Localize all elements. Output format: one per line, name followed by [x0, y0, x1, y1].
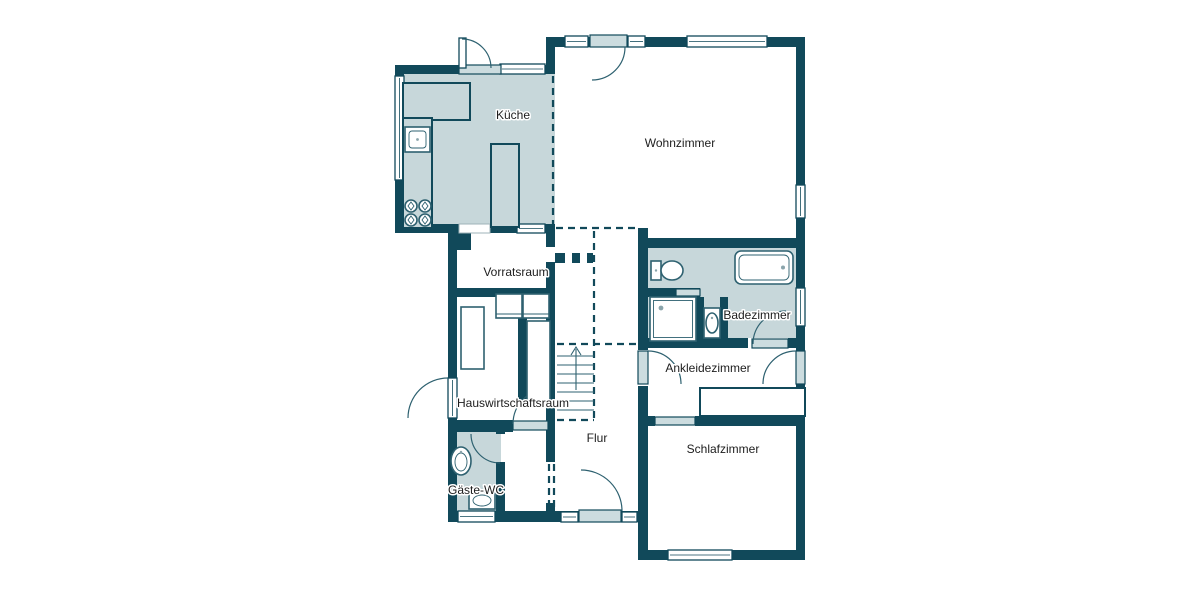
dressing-right-door — [763, 351, 805, 384]
label-hauswirtschaftsraum: Hauswirtschaftsraum — [457, 396, 569, 410]
living-right-window — [796, 185, 805, 218]
pantry-entry-opening — [459, 224, 490, 233]
label-schlafzimmer: Schlafzimmer — [687, 442, 760, 456]
shower-icon — [650, 297, 696, 341]
pantry-pillar — [457, 233, 471, 250]
half-wall-shelf — [555, 253, 593, 263]
kitchen-counter-top — [403, 83, 470, 120]
shower-room-door-leaf — [676, 289, 700, 296]
floor-plan: Küche Wohnzimmer Vorratsraum Badezimmer … — [0, 0, 1200, 600]
wardrobe — [700, 388, 805, 416]
label-flur: Flur — [587, 431, 608, 445]
bedroom-bottom-window — [668, 550, 732, 560]
living-window-2 — [628, 36, 645, 47]
pantry-top-window — [517, 224, 545, 233]
bathroom-top-wall — [638, 238, 805, 248]
living-terrace-door — [590, 35, 627, 80]
label-wohnzimmer: Wohnzimmer — [645, 136, 715, 150]
floor-plan-page: Küche Wohnzimmer Vorratsraum Badezimmer … — [0, 0, 1200, 600]
utility-inner-wall — [518, 318, 527, 407]
label-kueche: Küche — [496, 108, 530, 122]
utility-fixtures — [461, 294, 550, 401]
cabinet-right — [527, 321, 550, 401]
basin-niche-left-wall — [696, 297, 704, 348]
sink-icon — [405, 127, 430, 152]
entrance-door — [579, 470, 622, 522]
basin-niche-right-wall — [720, 297, 728, 348]
label-vorratsraum: Vorratsraum — [483, 265, 548, 279]
toilet-icon — [651, 261, 683, 280]
wc-right-wall-top — [496, 420, 505, 434]
living-window-1 — [565, 36, 588, 47]
dressing-bedroom-wall-stub — [638, 416, 655, 426]
wc-bottom-window — [458, 511, 495, 522]
dressing-bedroom-pass-strip — [655, 417, 695, 425]
utility-exterior-door — [408, 378, 448, 418]
living-window-3 — [687, 36, 767, 47]
cabinet-left — [461, 307, 484, 369]
utility-left-opening — [448, 378, 457, 418]
label-ankleidezimmer: Ankleidezimmer — [665, 361, 750, 375]
washer-dryer-icon — [496, 294, 549, 318]
bathroom-right-window — [796, 288, 805, 326]
bathtub-icon — [735, 251, 793, 284]
kitchen-top-window — [500, 64, 545, 74]
hall-bedroom-wall — [638, 228, 648, 560]
washbasin-icon — [704, 308, 720, 338]
label-badezimmer: Badezimmer — [723, 308, 790, 322]
stairs-up-arrow-icon — [571, 347, 581, 390]
left-exterior-wall — [448, 224, 457, 522]
label-gaeste-wc: Gäste-WC — [448, 483, 504, 497]
entry-side-window-left — [561, 512, 578, 522]
spine-hatch-opening — [546, 247, 555, 262]
spine-wall-stub — [546, 503, 555, 522]
entry-side-window-right — [622, 512, 637, 522]
dressing-bedroom-wall — [695, 416, 805, 426]
wc-toilet-icon — [451, 447, 471, 475]
kitchen-island — [491, 144, 519, 227]
kitchen-exterior-door — [459, 38, 501, 74]
